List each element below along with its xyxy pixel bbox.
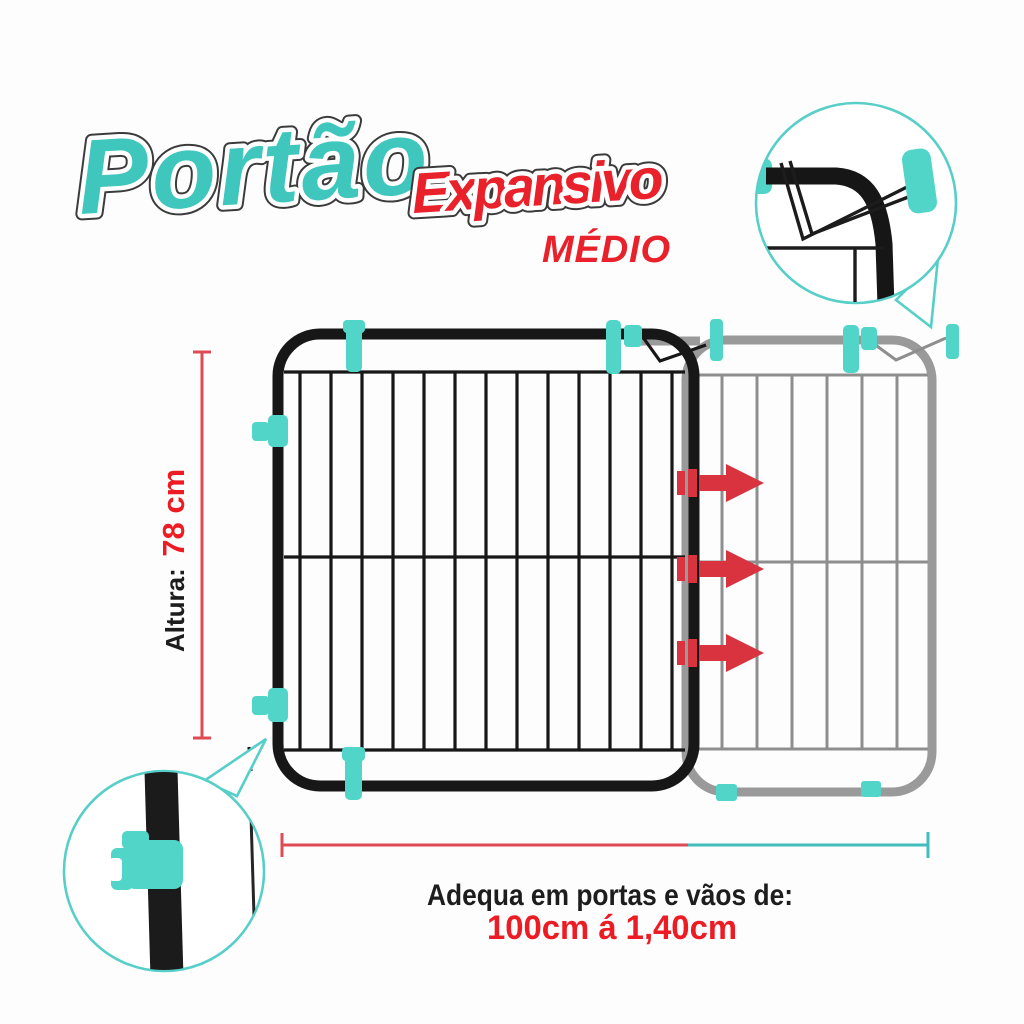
height-dimension: Altura: 78 cm [156, 352, 211, 738]
mount-clip [624, 325, 642, 347]
mount-clip [346, 322, 362, 372]
fits-caption: Adequa em portas e vãos de: [427, 879, 793, 912]
mount-clip [606, 320, 621, 374]
title-main: Portão [74, 98, 431, 237]
fits-range: 100cm á 1,40cm [487, 909, 737, 947]
width-dimension-line-extension [688, 832, 928, 858]
mount-clip [710, 319, 723, 361]
mount-clip-nub [252, 696, 269, 715]
mount-clip [716, 784, 737, 801]
black-gate-bars [300, 372, 672, 750]
width-dimension-line-base [282, 833, 688, 857]
width-dimension: Adequa em portas e vãos de: 100cm á 1,40… [282, 832, 928, 947]
mount-clips [252, 319, 881, 801]
title-accent: Expansivo [410, 147, 665, 226]
mount-clip [268, 415, 288, 447]
mount-clip [345, 748, 362, 800]
mount-clip [861, 781, 881, 797]
infographic-canvas: Portão Portão Expansivo Expansivo MÉDIO [0, 0, 1024, 1024]
mount-clip [843, 325, 859, 373]
latch-clip-slot [109, 858, 122, 881]
height-dimension-label: Altura: 78 cm [156, 469, 191, 652]
product-infographic: Portão Portão Expansivo Expansivo MÉDIO [0, 0, 1024, 1024]
mount-clip [268, 688, 288, 722]
wall-mount-pad [946, 324, 959, 359]
latch-clip-lip [122, 831, 149, 849]
detail-callout-corner [740, 103, 956, 327]
mount-clip [861, 327, 877, 350]
mount-clip-nub [252, 422, 269, 441]
title-size-label: MÉDIO [542, 227, 670, 271]
gate-black-main [249, 329, 706, 786]
height-dimension-line [193, 352, 211, 738]
page-title: Portão Portão Expansivo Expansivo MÉDIO [74, 98, 670, 271]
detail-callout-clip [64, 739, 266, 978]
